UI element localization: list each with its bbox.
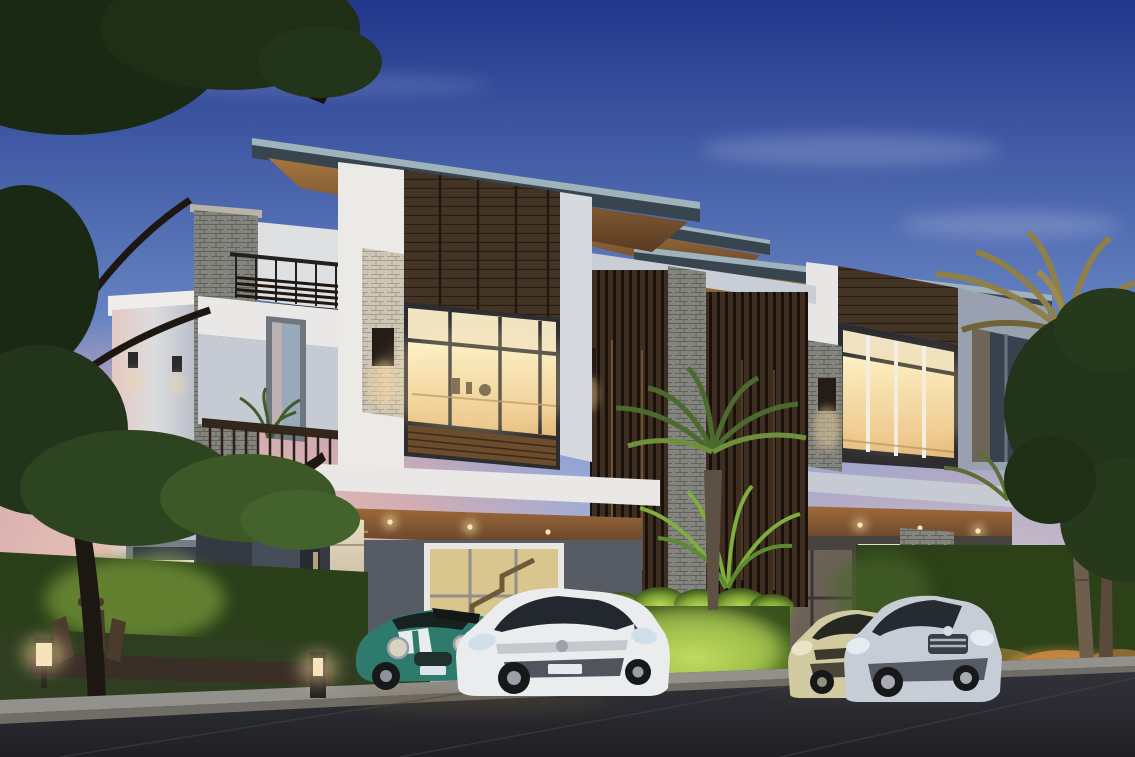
hedge-lantern-light bbox=[45, 558, 225, 642]
sedan-license-plate bbox=[548, 664, 582, 674]
hatch-wheel-hub bbox=[817, 677, 827, 687]
architectural-rendering bbox=[0, 0, 1135, 757]
window-glow bbox=[380, 325, 580, 435]
mini-wheel-hub bbox=[380, 670, 392, 682]
silver-wheel-hub bbox=[960, 672, 972, 684]
sedan-wheel-hub bbox=[633, 667, 644, 678]
corner-pillar-white bbox=[806, 262, 838, 345]
silver-grille bbox=[928, 634, 968, 654]
sconce-glow bbox=[125, 368, 141, 392]
side-window-warm-reflection bbox=[972, 328, 990, 462]
stone-pillar bbox=[668, 266, 706, 642]
sconce-glow bbox=[814, 406, 840, 450]
sconce-glow bbox=[169, 372, 185, 396]
cloud-streak bbox=[900, 212, 1120, 238]
mini-headlight bbox=[388, 638, 408, 658]
cloud-streak bbox=[700, 134, 1000, 166]
mini-grille bbox=[414, 652, 452, 666]
corner-pillar-white bbox=[560, 192, 592, 462]
dark-wood-cladding bbox=[404, 170, 560, 322]
sedan-brand-badge bbox=[556, 640, 568, 652]
mini-license-plate bbox=[420, 666, 446, 675]
rendering-canvas bbox=[0, 0, 1135, 757]
wall-sconce bbox=[172, 356, 182, 372]
silver-star-badge bbox=[943, 626, 953, 636]
silver-wheel-hub bbox=[881, 675, 895, 689]
wall-sconce bbox=[128, 352, 138, 368]
sedan-wheel-hub bbox=[507, 671, 521, 685]
